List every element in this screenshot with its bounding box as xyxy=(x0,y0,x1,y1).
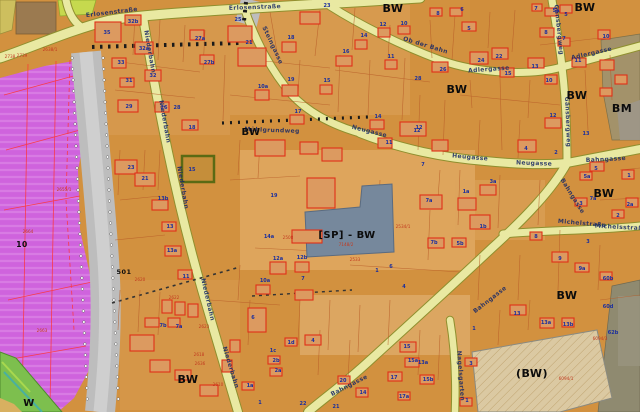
parcel-number: 2622 xyxy=(169,295,180,300)
house-number: 5b xyxy=(456,241,463,247)
zone-label: W xyxy=(23,398,35,409)
parcel-number: 2610 xyxy=(213,382,224,387)
house-number: 12b xyxy=(297,255,308,261)
house-number: 13 xyxy=(583,131,590,137)
house-number: 29 xyxy=(126,104,133,110)
house-number: 14 xyxy=(361,33,368,39)
house-number: 11 xyxy=(575,58,582,64)
house-number: 10 xyxy=(546,78,553,84)
house-number: 19 xyxy=(271,193,278,199)
house-number: 1 xyxy=(375,268,379,274)
house-number: 32 xyxy=(150,73,157,79)
house-number: 12 xyxy=(414,128,421,134)
house-number: 5 xyxy=(564,12,568,18)
zone-label: BW xyxy=(575,1,596,14)
house-number: 19 xyxy=(288,77,295,83)
house-number: 16 xyxy=(343,49,350,55)
house-number: 1 xyxy=(627,173,631,179)
map-viewport[interactable]: ErlosenstraßeErlosenstraßeNiederbahnNied… xyxy=(0,0,640,412)
parcel-number: 2620 xyxy=(135,277,146,282)
zone-label: BW xyxy=(241,127,260,138)
house-number: 3a xyxy=(490,179,497,185)
house-number: 10 xyxy=(401,21,408,27)
house-number: 7 xyxy=(301,276,305,282)
zone-label: 10 xyxy=(16,240,27,249)
cadastral-map: ErlosenstraßeErlosenstraßeNiederbahnNied… xyxy=(0,0,640,412)
house-number: 2a xyxy=(627,202,634,208)
house-number: 13a xyxy=(541,320,551,326)
house-number: 11 xyxy=(183,274,190,280)
house-number: 4 xyxy=(524,146,528,152)
house-number: 15 xyxy=(404,344,411,350)
house-number: 33 xyxy=(118,60,125,66)
house-number: 15 xyxy=(324,78,331,84)
house-number: 18 xyxy=(189,125,196,131)
house-number: 24 xyxy=(478,58,485,64)
house-number: 17 xyxy=(295,109,302,115)
house-number: 28 xyxy=(415,76,422,82)
house-number: 14a xyxy=(264,234,274,240)
parcel-number: 2533 xyxy=(350,257,361,262)
house-number: 17 xyxy=(391,375,398,381)
parcel-number: 2636 xyxy=(195,361,206,366)
house-number: 15 xyxy=(189,167,196,173)
house-number: 1b xyxy=(479,224,486,230)
house-number: 5 xyxy=(467,26,471,32)
house-number: 7 xyxy=(421,162,425,168)
house-number: 22 xyxy=(300,401,307,407)
house-number: 21 xyxy=(333,404,340,410)
parcel-number: 2508 xyxy=(283,235,294,240)
house-number: 7a xyxy=(426,198,433,204)
zone-label: BW xyxy=(383,2,404,15)
house-number: 8 xyxy=(534,234,538,240)
house-number: 18 xyxy=(288,35,295,41)
house-number: 1d xyxy=(287,340,294,346)
house-number: 7a xyxy=(176,324,183,330)
parcel-number: 2738 xyxy=(5,54,16,59)
house-number: 2 xyxy=(616,213,620,219)
zone-label: BW xyxy=(178,373,199,386)
house-number: 32b xyxy=(128,19,139,25)
house-number: 2 xyxy=(554,150,558,156)
zone-label: BM xyxy=(612,102,632,115)
house-number: 23 xyxy=(128,165,135,171)
house-number: 22 xyxy=(496,54,503,60)
house-number: 31 xyxy=(126,78,133,84)
house-number: 25 xyxy=(235,17,242,23)
parcel-number: 2739 xyxy=(17,53,28,58)
house-number: 15b xyxy=(423,377,434,383)
house-number: 27a xyxy=(195,36,205,42)
house-number: 32a xyxy=(139,46,149,52)
house-number: 35 xyxy=(104,30,111,36)
house-number: 62b xyxy=(608,330,619,336)
house-number: 13b xyxy=(158,196,169,202)
house-number: 3 xyxy=(469,361,473,367)
house-number: 1 xyxy=(472,326,476,332)
parcel-number: 2664 xyxy=(23,229,34,234)
zone-label: BW xyxy=(557,289,578,302)
house-number: 10a xyxy=(260,278,270,284)
zone-label: BW xyxy=(567,89,588,102)
house-number: 14 xyxy=(375,114,382,120)
zone-label: 501 xyxy=(116,268,131,276)
house-number: 8 xyxy=(544,30,548,36)
house-number: 2a xyxy=(275,368,282,374)
house-number: 7b xyxy=(159,323,166,329)
house-number: 21 xyxy=(246,40,253,46)
parcel-number: 2663 xyxy=(37,328,48,333)
parcel-number: 2638/1 xyxy=(43,47,58,52)
house-number: 6 xyxy=(251,315,255,321)
zone-label: [SP] - BW xyxy=(318,230,375,241)
house-number: 1 xyxy=(258,400,262,406)
house-number: 10a xyxy=(258,84,268,90)
house-number: 6 xyxy=(460,7,464,13)
house-number: 15a xyxy=(408,358,418,364)
house-number: 21 xyxy=(142,176,149,182)
parcel-number: 2623 xyxy=(199,324,210,329)
house-number: 1c xyxy=(270,348,276,354)
street-label: Neugasse xyxy=(516,159,552,167)
parcel-number: 6094/1 xyxy=(559,376,574,381)
house-number: 60d xyxy=(603,304,614,310)
house-number: 13 xyxy=(532,64,539,70)
house-number: 12 xyxy=(550,113,557,119)
house-number: 20 xyxy=(340,378,347,384)
house-number: 10 xyxy=(603,34,610,40)
house-number: 9a xyxy=(579,266,586,272)
parcel-number: 6094/3 xyxy=(593,336,608,341)
house-number: 14 xyxy=(360,390,367,396)
house-number: 17a xyxy=(399,394,409,400)
house-number: 27b xyxy=(204,60,215,66)
house-number: 3 xyxy=(586,239,590,245)
house-number: 4 xyxy=(311,338,315,344)
house-number: 13b xyxy=(563,322,574,328)
parcel-number: 2618 xyxy=(194,352,205,357)
house-number: 12 xyxy=(380,22,387,28)
house-number: 13a xyxy=(418,360,428,366)
house-number: 13 xyxy=(514,311,521,317)
house-number: 3 xyxy=(579,201,583,207)
house-number: 8 xyxy=(436,11,440,17)
house-number: 2b xyxy=(272,358,279,364)
house-number: 5a xyxy=(553,8,560,14)
house-number: 7 xyxy=(562,36,566,42)
house-number: 6 xyxy=(389,264,393,270)
parcel-number: 2655/1 xyxy=(57,187,72,192)
house-number: 5 xyxy=(594,166,598,172)
zone-label: BW xyxy=(594,187,615,200)
house-number: 15 xyxy=(505,71,512,77)
house-number: 7 xyxy=(534,6,538,12)
highlight-parcel-box xyxy=(182,156,214,182)
house-number: 13a xyxy=(167,248,177,254)
house-number: 4 xyxy=(402,284,406,290)
house-number: 26 xyxy=(440,67,447,73)
zone-label: BW xyxy=(447,83,468,96)
house-number: 23 xyxy=(324,3,331,9)
house-number: 11 xyxy=(386,140,393,146)
house-number: 7b xyxy=(430,240,437,246)
house-number: 9 xyxy=(558,256,562,262)
house-number: 12a xyxy=(273,256,283,262)
house-number: 28 xyxy=(174,105,181,111)
zone-label: (BW) xyxy=(516,367,548,380)
house-number: 11 xyxy=(388,54,395,60)
house-number: 13 xyxy=(167,224,174,230)
parcel-number: 7148/2 xyxy=(339,242,354,247)
house-number: 1a xyxy=(463,189,470,195)
house-number: 1a xyxy=(247,383,254,389)
house-number: 60b xyxy=(603,276,614,282)
house-number: 1 xyxy=(465,398,469,404)
house-number: 5a xyxy=(584,174,591,180)
house-number: 26 xyxy=(161,105,168,111)
parcel-number: 2534/1 xyxy=(396,224,411,229)
